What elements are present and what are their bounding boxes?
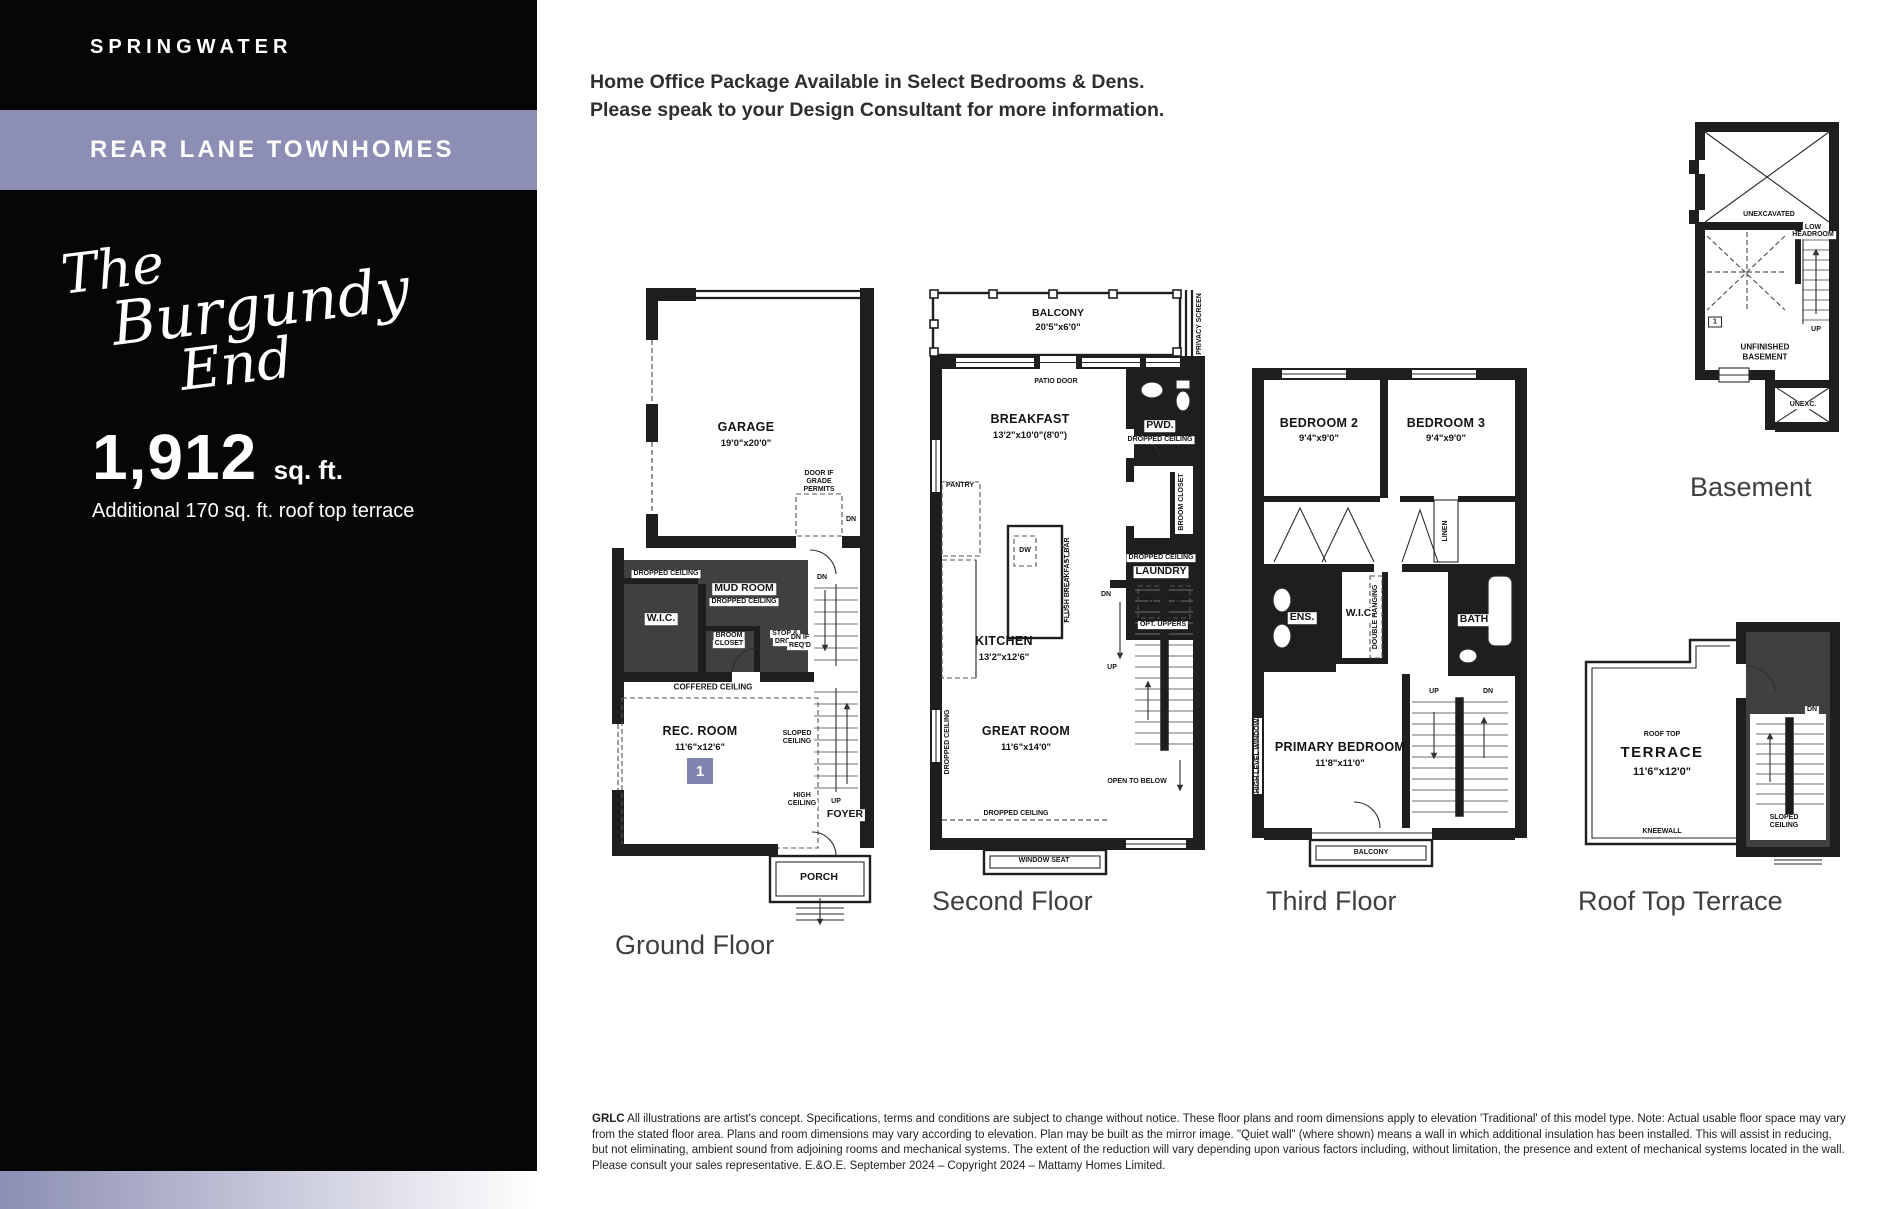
dryer-label: D <box>1148 598 1154 607</box>
unfinished-basement-label-2: BASEMENT <box>1741 354 1790 363</box>
ensuite-label: ENS. <box>1288 612 1317 624</box>
great-room-label: GREAT ROOM <box>982 725 1070 739</box>
bath-label: BATH <box>1458 614 1490 626</box>
window-seat-label: WINDOW SEAT <box>1019 857 1070 865</box>
coffered-ceiling-label: COFFERED CEILING <box>674 684 753 693</box>
third-floor-caption: Third Floor <box>1266 886 1397 917</box>
porch-label: PORCH <box>800 872 838 884</box>
dropped-ceiling-label-a: DROPPED CEILING <box>632 570 701 578</box>
double-hanging-label: DOUBLE HANGING <box>1372 585 1380 650</box>
header-note: Home Office Package Available in Select … <box>590 68 1164 124</box>
sloped-ceiling-label-2: CEILING <box>781 738 813 746</box>
laundry-dropped-ceiling-label: DROPPED CEILING <box>1127 554 1196 562</box>
second-floor-caption: Second Floor <box>932 886 1093 917</box>
door-grade-label-1: DOOR IF <box>804 470 833 478</box>
model-name-script: The Burgundy End <box>37 202 483 412</box>
stairs-up-label: UP <box>1105 664 1119 672</box>
ground-floor-caption: Ground Floor <box>615 930 774 961</box>
basement-drawing <box>1685 122 1845 455</box>
garage-label: GARAGE <box>718 421 775 435</box>
collection-band: REAR LANE TOWNHOMES <box>0 110 537 190</box>
basement-plan: UNEXCAVATED LOW HEADROOM UP 1 UNFINISHED… <box>1685 122 1845 455</box>
unit-number-badge: 1 <box>687 758 713 784</box>
kitchen-label: KITCHEN <box>975 635 1033 649</box>
ground-floor-plan: GARAGE 19'0"x20'0" DOOR IF GRADE PERMITS… <box>600 288 888 936</box>
broom-closet-label: BROOM CLOSET <box>1178 473 1186 530</box>
floorplan-brochure-page: SPRINGWATER REAR LANE TOWNHOMES The Burg… <box>0 0 1900 1209</box>
high-ceiling-label-2: CEILING <box>786 800 818 808</box>
dn-label-b: DN <box>815 574 829 582</box>
opt-uppers-label: OPT. UPPERS <box>1138 621 1188 629</box>
foyer-label: FOYER <box>825 809 865 821</box>
basement-up-label: UP <box>1809 326 1823 334</box>
kitchen-dim: 13'2"x12'6" <box>979 653 1030 663</box>
high-level-window-label: HIGH LEVEL WINDOW <box>1254 719 1262 794</box>
community-name: SPRINGWATER <box>90 36 292 59</box>
low-headroom-label-2: HEADROOM <box>1790 231 1836 239</box>
roof-sloped-label-1: SLOPED <box>1768 814 1801 822</box>
garage-dim: 19'0"x20'0" <box>721 439 772 449</box>
mud-room-label: MUD ROOM <box>712 583 776 595</box>
unexc-label: UNEXC. <box>1788 401 1818 409</box>
broom-closet-label-2: CLOSET <box>713 640 745 648</box>
area-unit: sq. ft. <box>274 455 343 485</box>
header-line1: Home Office Package Available in Select … <box>590 68 1164 96</box>
header-line2: Please speak to your Design Consultant f… <box>590 96 1164 124</box>
roof-top-label: ROOF TOP <box>1644 731 1680 739</box>
pwd-label: PWD. <box>1144 420 1175 432</box>
bottom-dropped-ceiling-label: DROPPED CEILING <box>982 810 1051 818</box>
door-grade-label-2: GRADE <box>806 478 831 486</box>
area-note: Additional 170 sq. ft. roof top terrace <box>92 500 414 523</box>
primary-bedroom-dim: 11'8"x11'0" <box>1315 759 1364 769</box>
broom-closet-label-1: BROOM <box>714 632 745 640</box>
ground-floor-drawing <box>600 288 888 936</box>
bottom-gradient-strip <box>0 1171 537 1209</box>
bedroom2-dim: 9'4"x9'0" <box>1299 434 1339 444</box>
roof-terrace-drawing <box>1578 622 1848 865</box>
basement-caption: Basement <box>1690 472 1812 503</box>
disclaimer: GRLC All illustrations are artist's conc… <box>592 1112 1847 1174</box>
balcony-label-third: BALCONY <box>1354 849 1389 857</box>
basement-unit-badge: 1 <box>1708 317 1722 328</box>
third-floor-plan: BEDROOM 2 9'4"x9'0" BEDROOM 3 9'4"x9'0" … <box>1252 368 1527 873</box>
roof-sloped-label-2: CEILING <box>1768 822 1800 830</box>
bedroom3-label: BEDROOM 3 <box>1407 417 1485 431</box>
great-room-dropped-ceiling-label: DROPPED CEILING <box>944 710 952 775</box>
roof-terrace-caption: Roof Top Terrace <box>1578 886 1783 917</box>
dn-if-reqd-label-2: REQ'D <box>787 642 813 650</box>
unfinished-basement-label-1: UNFINISHED <box>1739 344 1792 353</box>
linen-label: LINEN <box>1442 521 1450 542</box>
patio-door-label: PATIO DOOR <box>1034 378 1077 386</box>
dn-label-a: DN <box>846 516 856 524</box>
privacy-screen-label: PRIVACY SCREEN <box>1196 293 1204 355</box>
rec-room-dim: 11'6"x12'6" <box>675 743 725 753</box>
collection-name: REAR LANE TOWNHOMES <box>90 136 455 164</box>
pwd-dropped-ceiling-label: DROPPED CEILING <box>1126 436 1195 444</box>
sidebar: SPRINGWATER REAR LANE TOWNHOMES The Burg… <box>0 0 537 1209</box>
breakfast-label: BREAKFAST <box>990 413 1069 427</box>
bedroom3-dim: 9'4"x9'0" <box>1426 434 1466 444</box>
pantry-label: PANTRY <box>944 482 976 490</box>
breakfast-dim: 13'2"x10'0"(8'0") <box>993 431 1067 441</box>
door-grade-label-3: PERMITS <box>803 486 834 494</box>
open-to-below-label: OPEN TO BELOW <box>1107 778 1166 786</box>
primary-bedroom-label: PRIMARY BEDROOM <box>1275 741 1405 755</box>
high-ceiling-label-1: HIGH <box>791 792 813 800</box>
sloped-ceiling-label-1: SLOPED <box>781 730 814 738</box>
flush-breakfast-bar-label: FLUSH BREAKFAST BAR <box>1064 537 1072 622</box>
disclaimer-prefix: GRLC <box>592 1113 625 1125</box>
disclaimer-text: All illustrations are artist's concept. … <box>592 1113 1846 1172</box>
area-line: 1,912 sq. ft. <box>92 420 343 494</box>
great-room-dim: 11'6"x14'0" <box>1001 743 1051 753</box>
rec-room-label: REC. ROOM <box>663 725 738 739</box>
dropped-ceiling-label-b: DROPPED CEILING <box>710 598 779 606</box>
second-floor-plan: BALCONY 20'5"x6'0" PRIVACY SCREEN PATIO … <box>930 290 1205 875</box>
stairs-dn-label: DN <box>1099 591 1113 599</box>
laundry-label: LAUNDRY <box>1134 566 1189 578</box>
stairs-up-label-third: UP <box>1427 688 1441 696</box>
dn-if-reqd-label-1: DN IF <box>789 634 811 642</box>
balcony-label: BALCONY <box>1032 308 1084 320</box>
unexcavated-label: UNEXCAVATED <box>1741 211 1797 219</box>
roof-dn-label: DN <box>1805 706 1819 714</box>
wic-label: W.I.C. <box>645 613 678 625</box>
washer-label: W <box>1174 598 1182 607</box>
terrace-label: TERRACE <box>1620 745 1703 762</box>
up-label: UP <box>829 798 843 806</box>
bedroom2-label: BEDROOM 2 <box>1280 417 1358 431</box>
terrace-dim: 11'6"x12'0" <box>1633 766 1691 778</box>
dw-label: DW <box>1019 547 1031 555</box>
stairs-dn-label-third: DN <box>1481 688 1495 696</box>
roof-terrace-plan: ROOF TOP TERRACE 11'6"x12'0" KNEEWALL DN… <box>1578 622 1848 865</box>
kneewall-label: KNEEWALL <box>1642 828 1681 836</box>
balcony-dim: 20'5"x6'0" <box>1035 323 1080 333</box>
area-value: 1,912 <box>92 421 257 493</box>
